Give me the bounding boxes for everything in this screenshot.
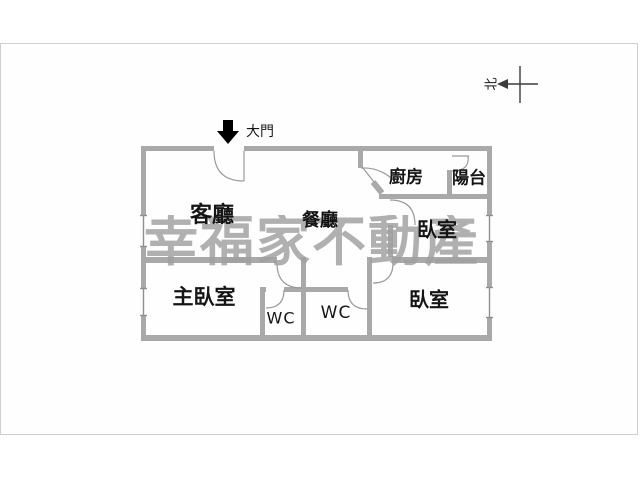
kitchen-label: 廚房 <box>389 163 423 188</box>
north-compass-icon <box>497 66 538 103</box>
master-bedroom-label: 主臥室 <box>173 281 236 311</box>
wc1-label: WC <box>267 309 296 328</box>
kitchen-door-leaf <box>363 168 374 182</box>
bedroom-upper-label: 臥室 <box>417 214 457 243</box>
living-room-label: 客廳 <box>190 197 234 229</box>
north-label: 北 <box>481 77 500 90</box>
main-door-arc <box>214 151 244 181</box>
entrance-arrow-icon <box>217 120 239 144</box>
bedroom-lower-label: 臥室 <box>409 284 449 313</box>
kitchen-diagonal-wall <box>373 182 382 193</box>
entrance-label: 大門 <box>246 121 274 141</box>
floor-plan-page: 幸福家不動產 客廳 餐廳 廚房 陽台 臥室 主臥室 WC WC 臥室 大門 北 <box>0 0 640 480</box>
dining-room-label: 餐廳 <box>302 206 338 232</box>
wc2-label: WC <box>321 303 352 323</box>
wc1-door-arc <box>266 290 284 308</box>
balcony-label: 陽台 <box>452 164 486 189</box>
